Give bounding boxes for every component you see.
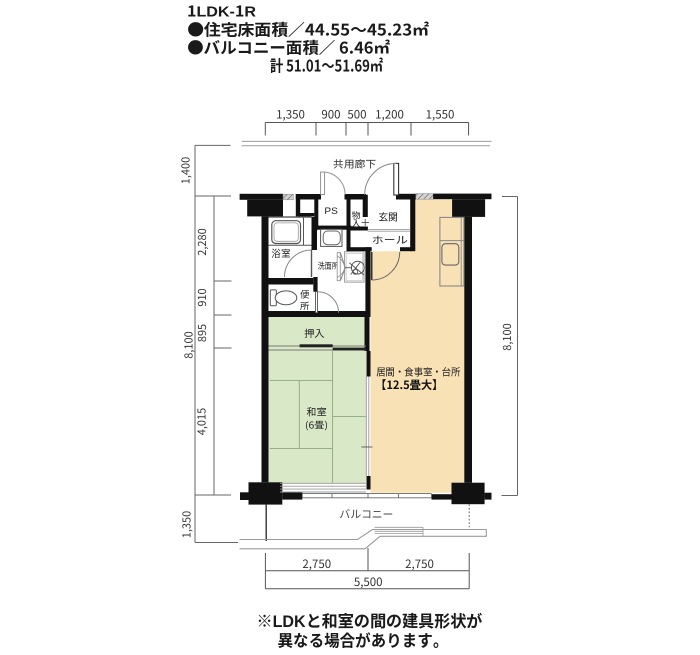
svg-text:500: 500 xyxy=(347,107,366,123)
svg-text:8,100: 8,100 xyxy=(499,323,515,350)
svg-text:2,280: 2,280 xyxy=(194,228,210,255)
svg-text:【12.5畳大】: 【12.5畳大】 xyxy=(375,377,443,393)
svg-text:(6畳): (6畳) xyxy=(305,418,328,432)
svg-text:1,350: 1,350 xyxy=(179,511,195,538)
svg-text:ホール: ホール xyxy=(372,231,409,246)
svg-text:計 51.01〜51.69㎡: 計 51.01〜51.69㎡ xyxy=(270,53,383,77)
svg-text:和室: 和室 xyxy=(307,404,327,419)
svg-text:1,400: 1,400 xyxy=(178,157,194,184)
svg-text:入: 入 xyxy=(352,217,361,230)
svg-text:バルコニー: バルコニー xyxy=(339,506,393,522)
svg-text:洗面所: 洗面所 xyxy=(318,259,339,272)
svg-text:押入: 押入 xyxy=(304,325,325,340)
svg-text:1,200: 1,200 xyxy=(375,107,404,123)
svg-text:900: 900 xyxy=(321,107,340,123)
svg-text:8,100: 8,100 xyxy=(181,331,197,358)
svg-text:異なる場合があります。: 異なる場合があります。 xyxy=(278,628,449,651)
svg-text:910: 910 xyxy=(194,288,210,306)
svg-text:共用廊下: 共用廊下 xyxy=(333,156,376,171)
svg-text:2,750: 2,750 xyxy=(302,556,331,572)
svg-text:浴室: 浴室 xyxy=(272,245,291,260)
svg-text:5,500: 5,500 xyxy=(354,574,383,590)
svg-text:1,550: 1,550 xyxy=(426,107,455,123)
svg-text:4,015: 4,015 xyxy=(194,408,210,435)
svg-text:1,350: 1,350 xyxy=(276,107,305,123)
svg-text:玄関: 玄関 xyxy=(378,208,398,223)
svg-text:所: 所 xyxy=(300,298,310,312)
svg-text:PS: PS xyxy=(324,203,338,217)
svg-text:2,750: 2,750 xyxy=(405,556,434,572)
